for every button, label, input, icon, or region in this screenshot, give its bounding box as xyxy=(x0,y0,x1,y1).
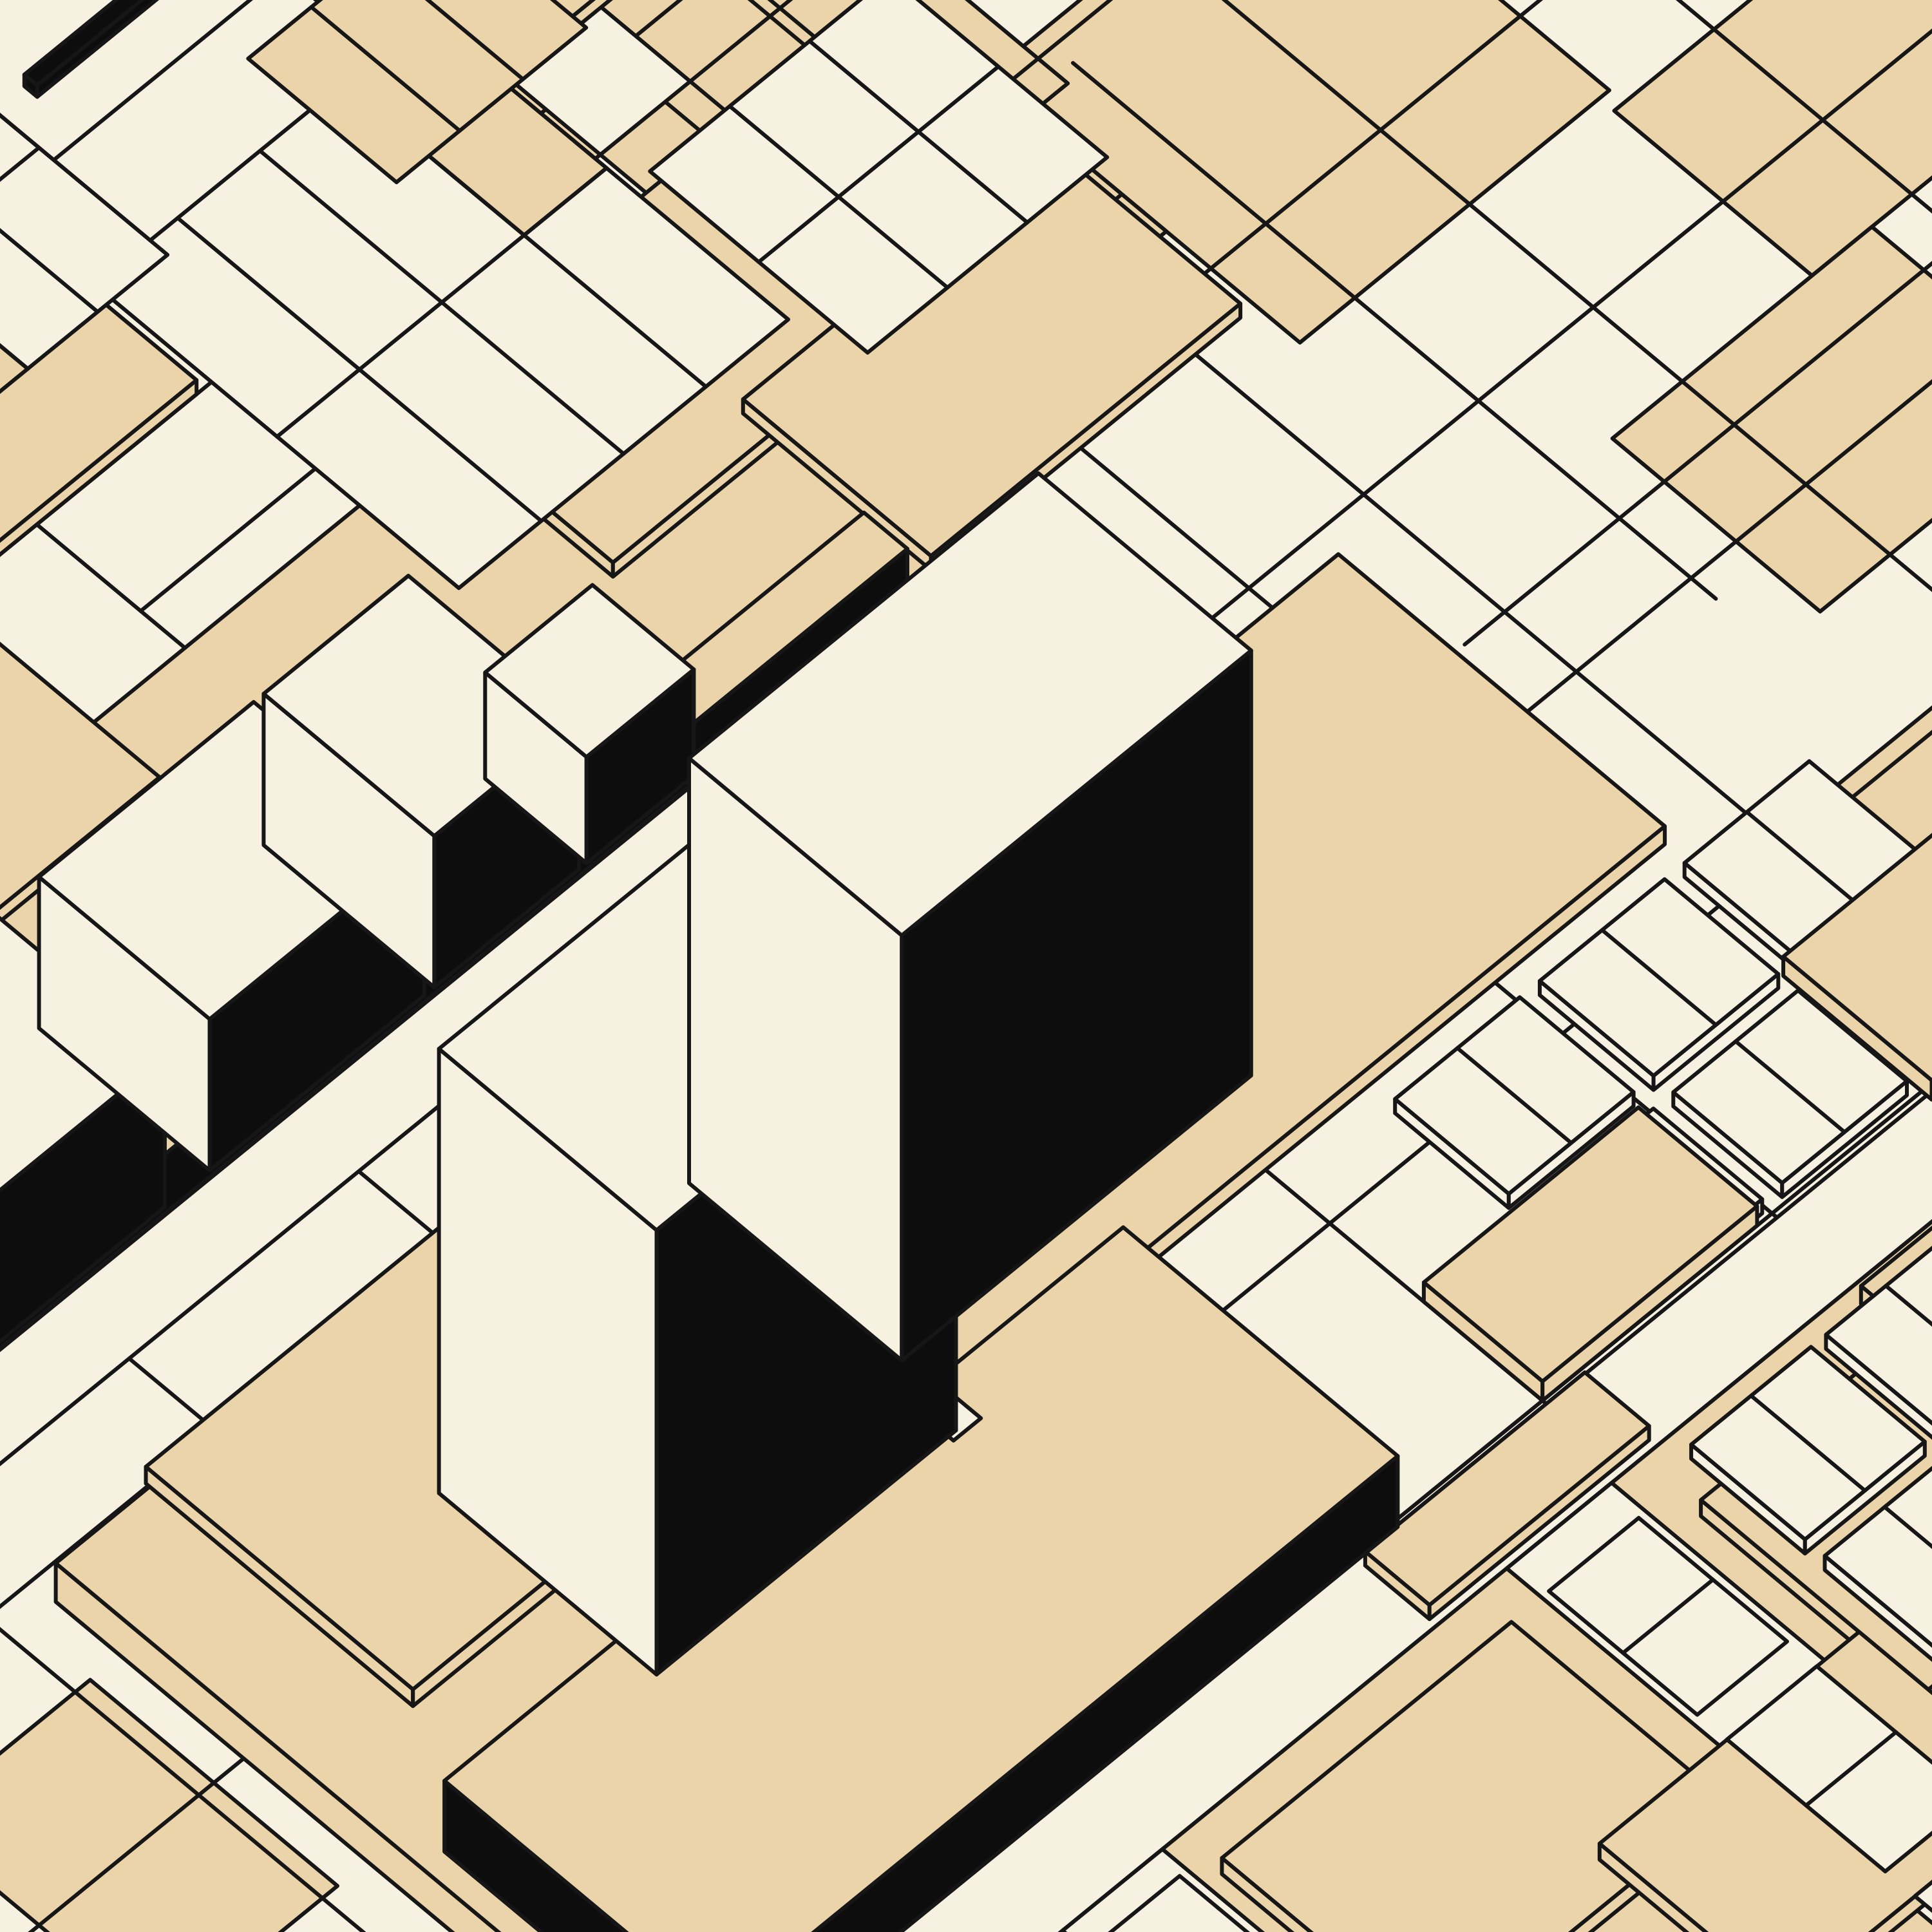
isometric-artwork xyxy=(0,0,1932,1932)
artwork-canvas xyxy=(0,0,1932,1932)
